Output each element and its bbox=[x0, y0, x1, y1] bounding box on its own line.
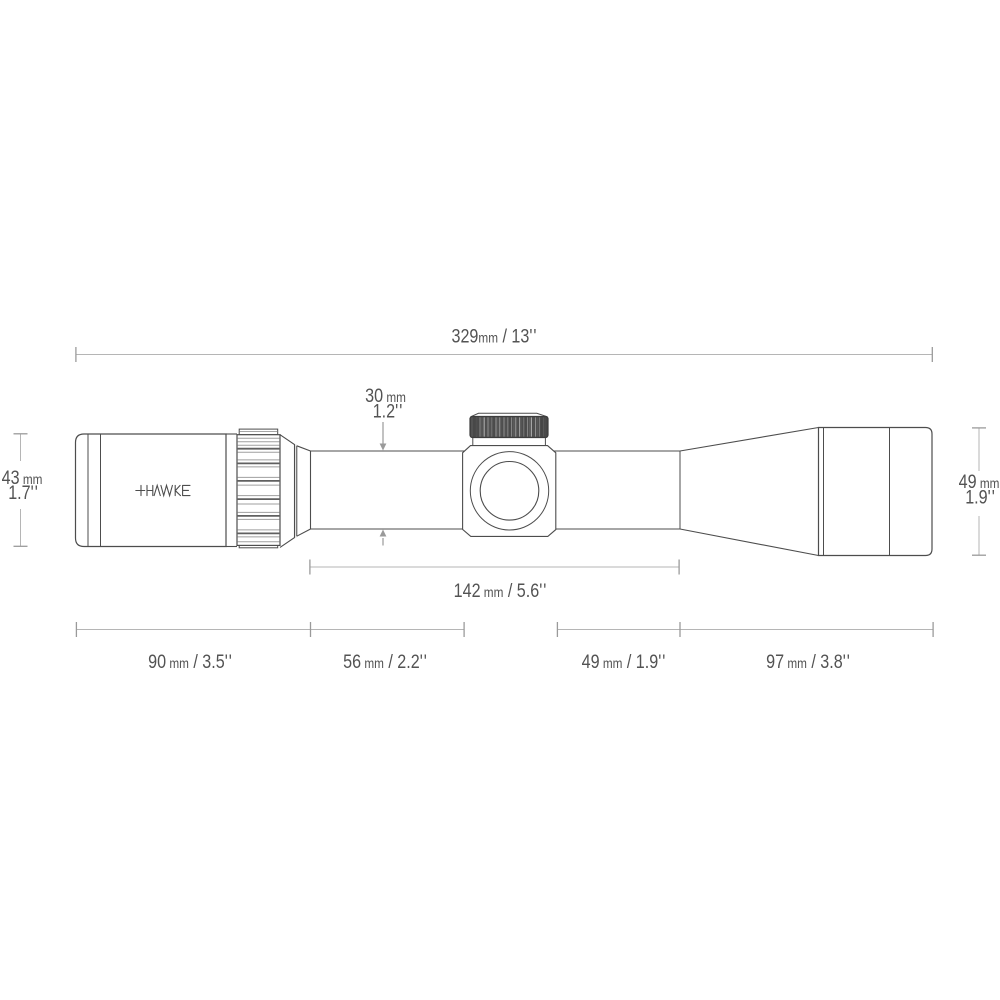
svg-text:1.7'': 1.7'' bbox=[8, 482, 38, 504]
svg-text:90 mm / 3.5'': 90 mm / 3.5'' bbox=[148, 651, 232, 673]
svg-text:97 mm / 3.8'': 97 mm / 3.8'' bbox=[766, 651, 850, 673]
svg-text:142 mm / 5.6'': 142 mm / 5.6'' bbox=[454, 580, 547, 602]
svg-text:1.9'': 1.9'' bbox=[965, 486, 995, 508]
svg-text:56 mm / 2.2'': 56 mm / 2.2'' bbox=[343, 651, 427, 673]
svg-text:329mm / 13'': 329mm / 13'' bbox=[451, 325, 536, 347]
svg-text:49 mm / 1.9'': 49 mm / 1.9'' bbox=[582, 651, 666, 673]
svg-text:1.2'': 1.2'' bbox=[373, 400, 403, 422]
